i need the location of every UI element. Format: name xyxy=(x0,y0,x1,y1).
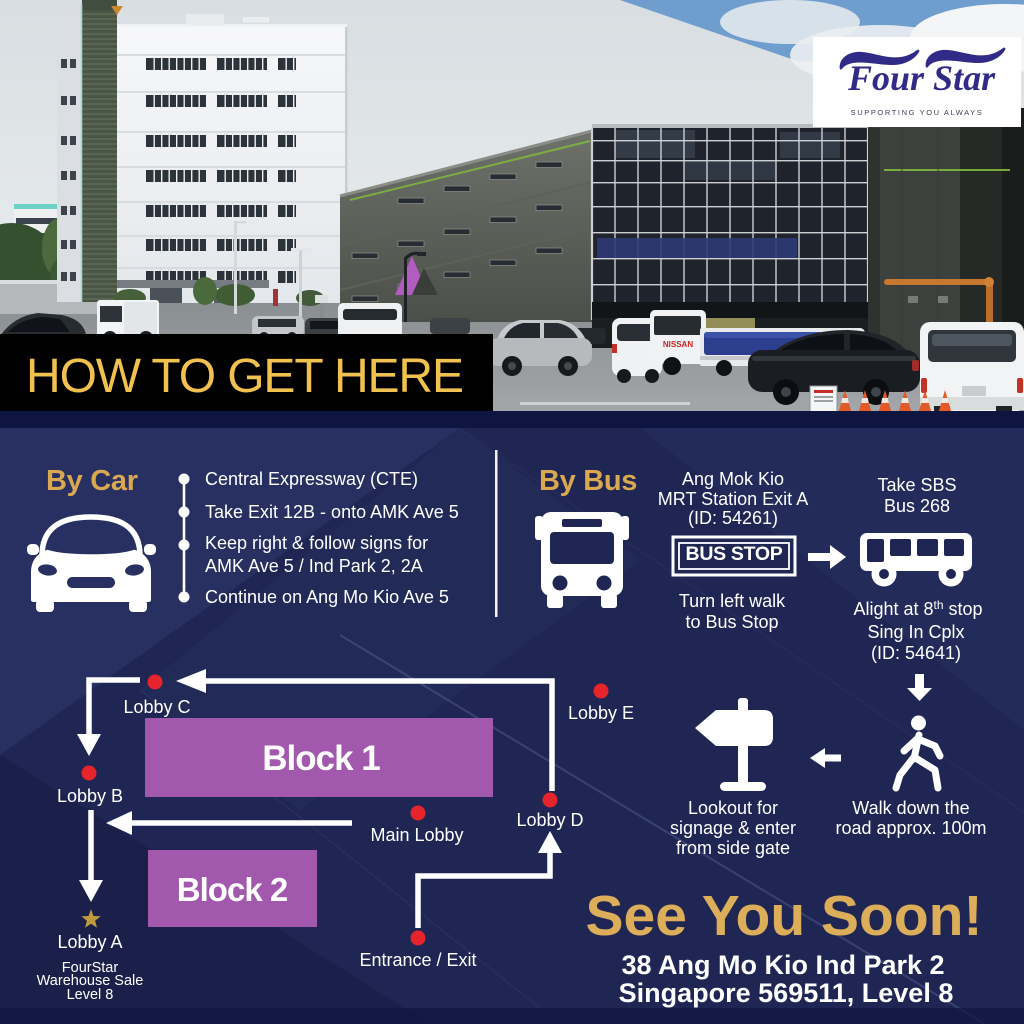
svg-text:Four Star: Four Star xyxy=(847,58,996,98)
svg-text:NISSAN: NISSAN xyxy=(663,340,693,349)
svg-text:SUPPORTING YOU ALWAYS: SUPPORTING YOU ALWAYS xyxy=(851,108,984,117)
